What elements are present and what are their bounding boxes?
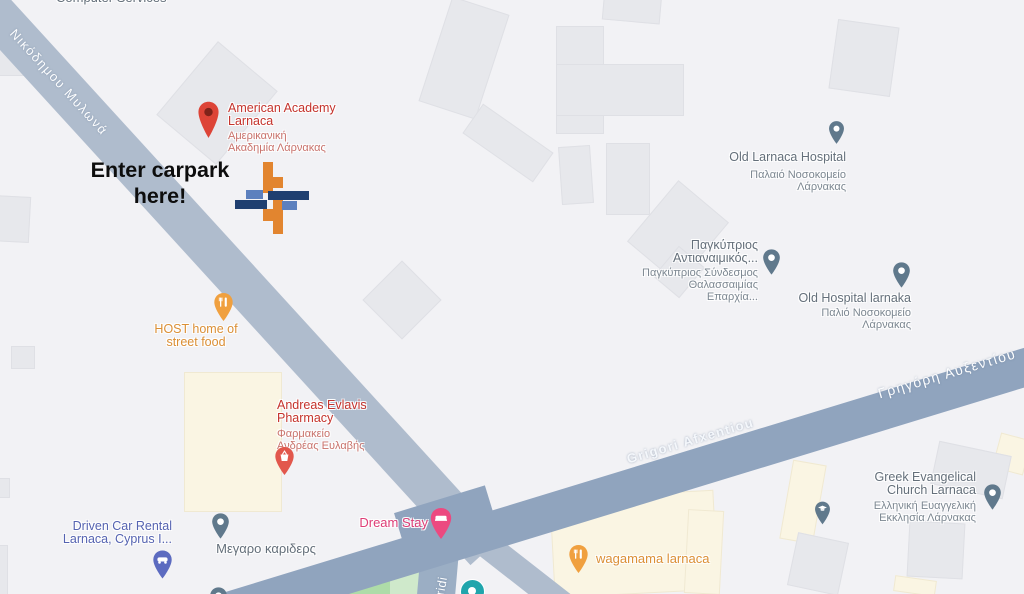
poi-label-greek-evangelical[interactable]: Greek Evangelical Church Larnaca <box>866 471 976 497</box>
old-hospital-larnaka-pin[interactable] <box>892 261 911 294</box>
building <box>11 346 35 369</box>
building <box>907 521 966 580</box>
building <box>462 104 553 183</box>
logo-bar <box>282 201 297 210</box>
map-canvas[interactable]: Νικόδημου Μυλωνά Grigori Afxentiou Γρηγό… <box>0 0 1024 594</box>
poi-sublabel-old-hospital-larnaka: Παλιό Νοσοκομείο Λάρνακας <box>791 307 911 331</box>
american-academy-pin[interactable] <box>197 100 220 145</box>
logo-bar <box>246 190 263 199</box>
building <box>0 195 31 243</box>
building <box>556 64 684 116</box>
poi-label-driven-car-rental[interactable]: Driven Car Rental Larnaca, Cyprus I... <box>57 520 172 546</box>
poi-sublabel-old-larnaca-hospital: Παλαιό Νοσοκομείο Λάρνακας <box>726 169 846 193</box>
logo-bar <box>268 191 309 200</box>
poi-label-wagamama[interactable]: wagamama larnaca <box>596 552 709 565</box>
building <box>0 478 10 498</box>
wagamama-pin[interactable] <box>568 543 589 580</box>
old-larnaca-hospital-pin[interactable] <box>828 120 845 150</box>
driven-car-rental-pin[interactable] <box>152 549 173 585</box>
pharmacy-pin[interactable] <box>274 446 295 481</box>
poi-label-host[interactable]: HOST home of street food <box>154 323 238 349</box>
school-pin[interactable] <box>814 499 831 532</box>
poi-label-megaro[interactable]: Μεγαρο καριδερς <box>206 542 326 555</box>
poi-sublabel-american-academy: Αμερικανική Ακαδημία Λάρνακας <box>228 130 328 154</box>
poi-label-dream-stay[interactable]: Dream Stay <box>348 516 428 529</box>
commercial-area <box>893 575 937 594</box>
pagkyprios-pin[interactable] <box>762 248 781 281</box>
poi-label-old-hospital-larnaka[interactable]: Old Hospital larnaka <box>786 292 911 305</box>
poi-label-pagkyprios[interactable]: Παγκύπριος Αντιαναιμικός... <box>638 239 758 265</box>
greek-evangelical-pin[interactable] <box>983 483 1002 516</box>
building <box>558 145 594 205</box>
carpark-annotation: Enter carpark here! <box>78 157 242 209</box>
building <box>0 545 8 594</box>
building <box>418 0 509 120</box>
building <box>602 0 662 24</box>
poi-label-old-larnaca-hospital[interactable]: Old Larnaca Hospital <box>721 151 846 164</box>
poi-label-american-academy[interactable]: American Academy Larnaca <box>228 102 336 128</box>
poi-label-pharmacy[interactable]: Andreas Evlavis Pharmacy <box>277 399 372 425</box>
road-label-side-street: ridi <box>433 576 450 594</box>
road-label-nikodimou: Νικόδημου Μυλωνά <box>7 26 111 138</box>
attraction-icon[interactable] <box>460 579 485 594</box>
logo-bar <box>263 162 273 193</box>
commercial-area <box>184 372 282 512</box>
poi-sublabel-greek-evangelical: Ελληνική Ευαγγελική Εκκλησία Λάρνακας <box>856 500 976 524</box>
logo-bar <box>235 200 267 209</box>
building <box>828 19 899 97</box>
poi-sublabel-pagkyprios: Παγκύπριος Σύνδεσμος Θαλασσαιμίας Επαρχί… <box>638 267 758 303</box>
building <box>606 143 650 215</box>
building <box>787 532 849 594</box>
logo-bar <box>263 209 273 221</box>
logo-bar <box>273 177 283 188</box>
building <box>362 260 441 339</box>
poi-label-computer-services[interactable]: Computer Services <box>56 0 167 4</box>
dream-stay-pin[interactable] <box>429 507 453 545</box>
unlabeled-pin[interactable] <box>209 586 228 594</box>
